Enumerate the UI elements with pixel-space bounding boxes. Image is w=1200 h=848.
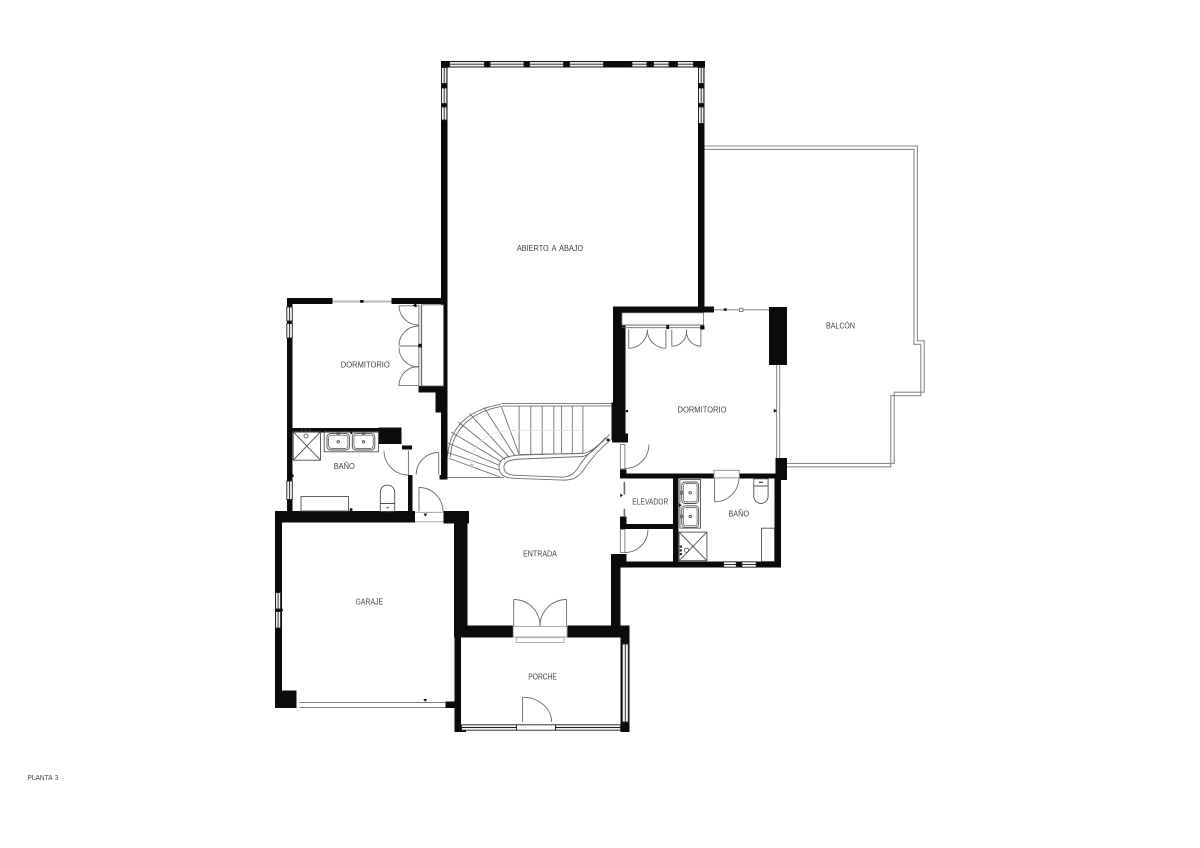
- svg-text:BALCÓN: BALCÓN: [826, 320, 855, 330]
- svg-text:BAÑO: BAÑO: [728, 509, 749, 519]
- svg-text:DORMITORIO: DORMITORIO: [678, 405, 727, 415]
- svg-text:ELEVADOR: ELEVADOR: [632, 497, 668, 507]
- svg-text:ABIERTO A ABAJO: ABIERTO A ABAJO: [517, 243, 584, 253]
- svg-text:GARAJE: GARAJE: [356, 597, 384, 607]
- svg-text:ENTRADA: ENTRADA: [523, 548, 557, 558]
- svg-text:DORMITORIO: DORMITORIO: [341, 359, 390, 369]
- svg-text:PLANTA 3: PLANTA 3: [28, 775, 59, 782]
- svg-text:PORCHE: PORCHE: [528, 672, 557, 682]
- svg-text:BAÑO: BAÑO: [334, 461, 356, 471]
